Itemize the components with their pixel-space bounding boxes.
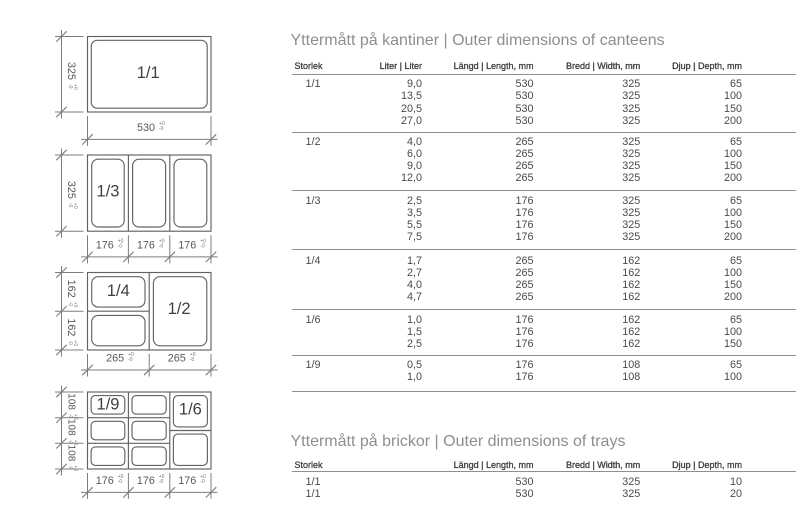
svg-text:108: 108 [66, 445, 77, 462]
svg-text:-0: -0 [200, 479, 205, 485]
svg-text:108: 108 [66, 393, 77, 410]
svg-text:-0: -0 [159, 126, 164, 132]
svg-text:1/1: 1/1 [137, 64, 160, 82]
svg-text:530: 530 [137, 122, 155, 134]
svg-text:-0: -0 [159, 479, 164, 485]
svg-text:-0: -0 [67, 340, 73, 345]
svg-text:1/4: 1/4 [107, 282, 130, 300]
svg-text:162: 162 [65, 318, 77, 336]
svg-text:176: 176 [178, 475, 196, 487]
svg-text:265: 265 [168, 353, 186, 365]
svg-text:-0: -0 [67, 302, 73, 307]
svg-text:-0: -0 [67, 203, 73, 208]
svg-text:-0: -0 [67, 440, 73, 445]
svg-text:-0: -0 [118, 479, 123, 485]
svg-text:176: 176 [137, 475, 155, 487]
svg-text:-0: -0 [159, 244, 164, 250]
svg-text:-0: -0 [67, 414, 73, 419]
svg-text:-0: -0 [190, 357, 195, 363]
svg-text:176: 176 [96, 240, 114, 252]
svg-text:176: 176 [137, 240, 155, 252]
svg-text:-0: -0 [67, 84, 73, 89]
svg-text:265: 265 [106, 353, 124, 365]
svg-text:162: 162 [65, 280, 77, 298]
svg-text:-0: -0 [128, 357, 133, 363]
svg-text:325: 325 [65, 181, 77, 199]
svg-text:-0: -0 [67, 465, 73, 470]
svg-text:1/2: 1/2 [168, 300, 191, 318]
svg-text:325: 325 [65, 62, 77, 80]
svg-text:-0: -0 [200, 244, 205, 250]
svg-text:108: 108 [66, 419, 77, 436]
svg-text:1/6: 1/6 [179, 400, 202, 418]
svg-text:1/9: 1/9 [97, 395, 120, 413]
svg-text:176: 176 [178, 240, 196, 252]
svg-text:1/3: 1/3 [97, 183, 120, 201]
svg-text:-0: -0 [118, 244, 123, 250]
svg-text:176: 176 [96, 475, 114, 487]
